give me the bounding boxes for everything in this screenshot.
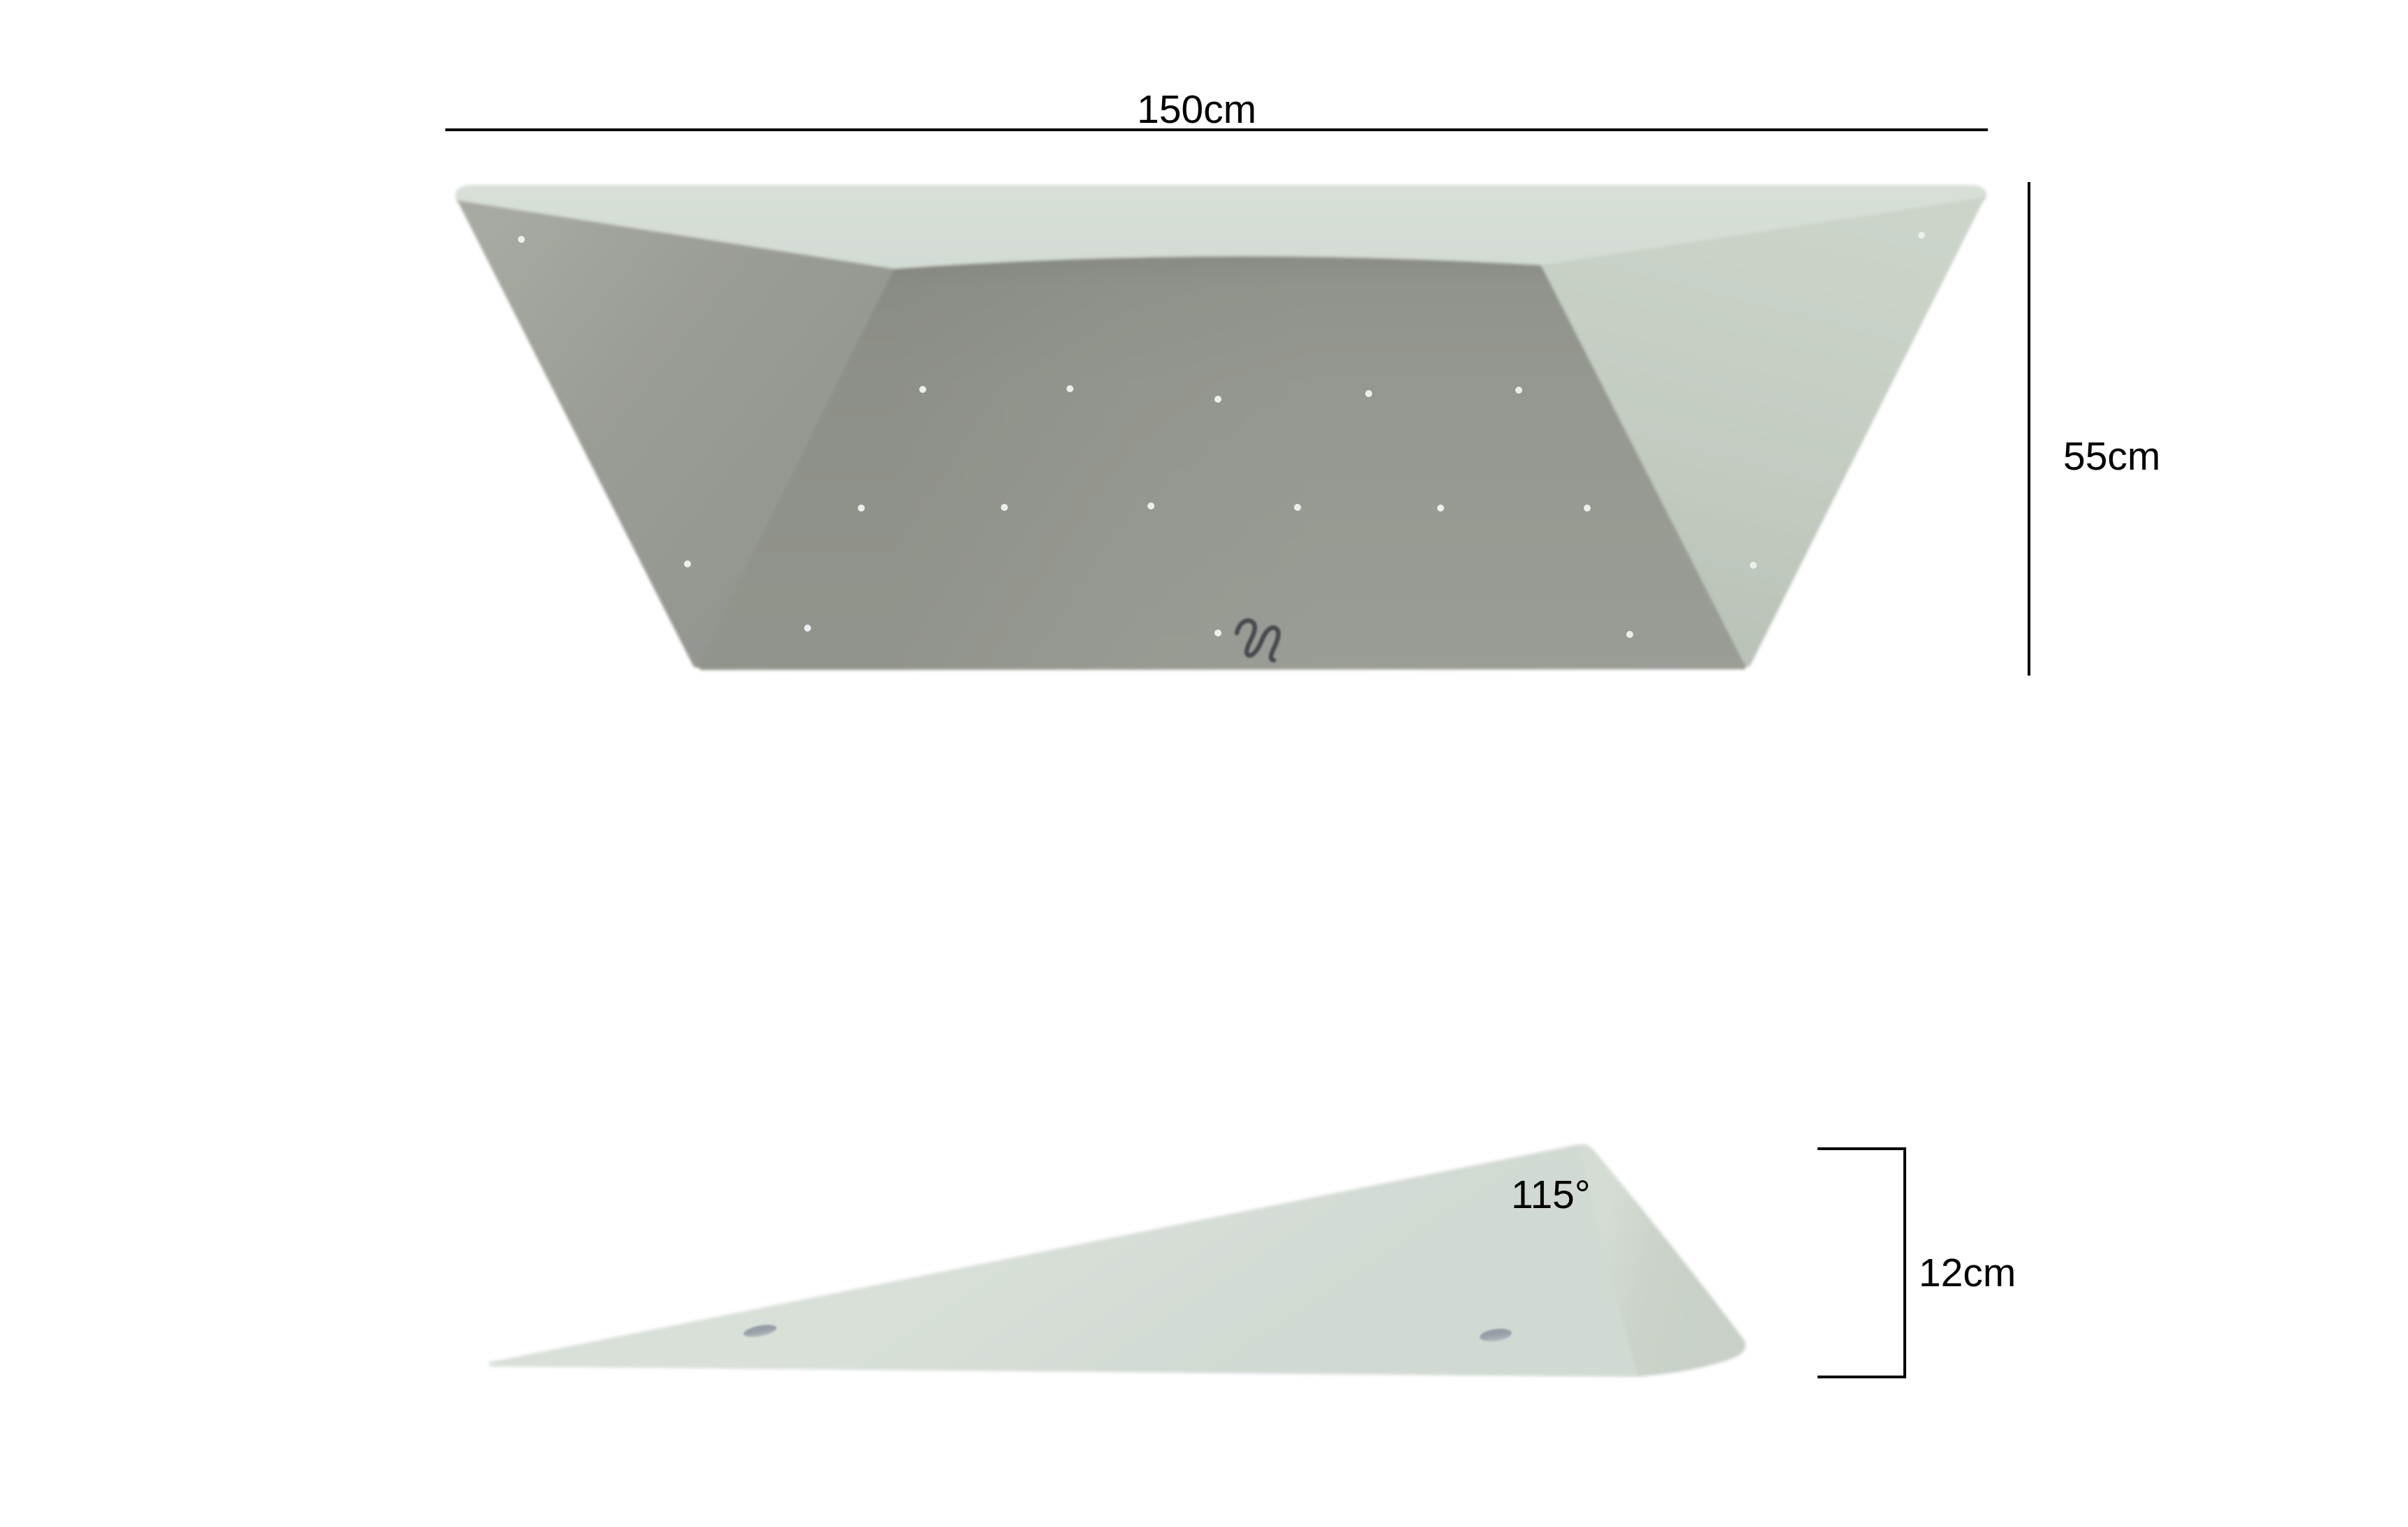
svg-text:150cm: 150cm: [1137, 87, 1256, 132]
svg-text:55cm: 55cm: [2063, 434, 2160, 479]
svg-text:115°: 115°: [1511, 1172, 1591, 1217]
svg-text:12cm: 12cm: [1919, 1251, 2016, 1295]
